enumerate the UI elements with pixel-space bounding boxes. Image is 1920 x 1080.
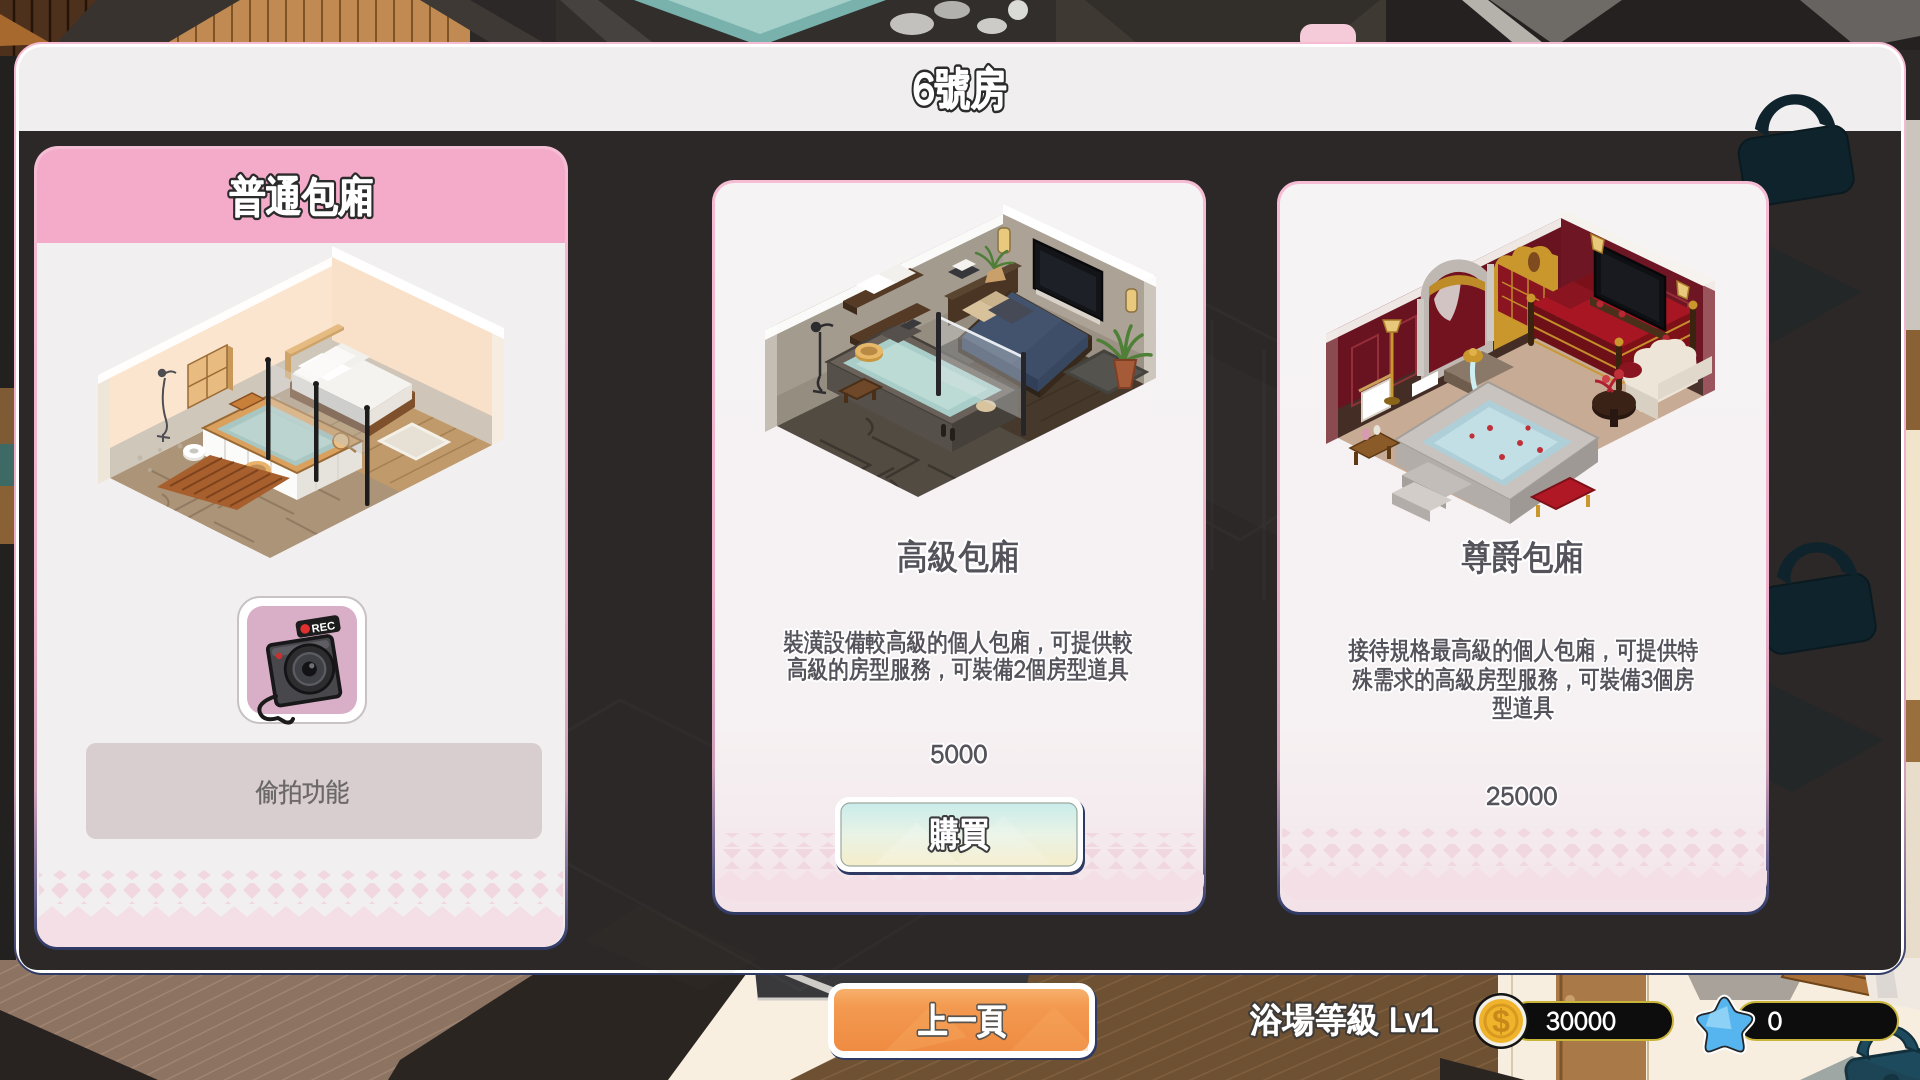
svg-text:$: $ — [1492, 1003, 1510, 1039]
